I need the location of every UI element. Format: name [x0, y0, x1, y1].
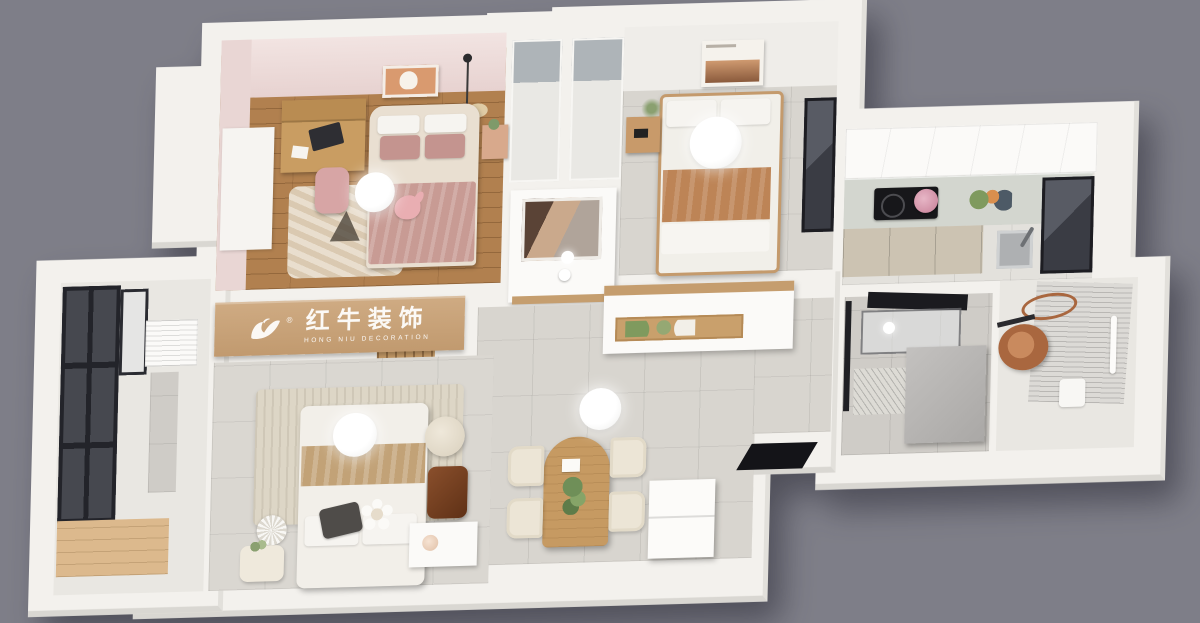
brand-name-en: HONG NIU DECORATION — [304, 334, 431, 345]
second-wall-art-scene — [705, 59, 760, 83]
dining-table-plant — [561, 474, 590, 515]
kitchen-upper-cabinets — [845, 122, 1098, 179]
wardrobe-unit-right — [569, 37, 624, 181]
kids-desk-chair — [314, 167, 349, 214]
dining-chair-3 — [610, 437, 647, 478]
balcony-wood-deck — [56, 518, 169, 577]
second-bed-fold — [661, 221, 770, 254]
registered-mark: ® — [287, 315, 293, 324]
balcony-window-wall — [57, 285, 121, 523]
kitchen-base-cabinets — [842, 225, 983, 277]
bull-logo-icon — [248, 313, 283, 344]
apartment-plan: ® 红牛装饰 HONG NIU DECORATION — [0, 0, 1200, 617]
kitchen-window — [1040, 176, 1094, 274]
kids-pillow-white-1 — [377, 115, 419, 134]
kids-desk-hutch — [282, 98, 367, 122]
balcony-ac-unit — [145, 319, 198, 367]
dining-table-card — [562, 459, 580, 473]
shower-drain-mat — [853, 367, 912, 415]
master-side-plant — [246, 537, 268, 556]
laundry-floor-mat — [1059, 378, 1086, 407]
sideboard-niche-plants — [625, 319, 695, 337]
dining-chair-1 — [508, 446, 545, 487]
dining-chair-4 — [608, 491, 645, 532]
master-leather-chair — [427, 466, 468, 519]
second-nightstand-plant — [640, 98, 662, 119]
scene: ® 红牛装饰 HONG NIU DECORATION — [0, 0, 1200, 600]
dining-chair-2 — [506, 498, 543, 539]
second-bedroom-window — [801, 97, 836, 232]
second-throw-blanket — [662, 167, 771, 222]
kids-rug-accent — [330, 211, 361, 242]
footprint-chimney — [152, 65, 226, 248]
kids-desk-papers — [291, 145, 309, 159]
bathroom-partition-block — [904, 345, 986, 443]
balcony-tile-column — [148, 372, 179, 493]
master-flower-pillow — [361, 498, 394, 531]
wardrobe-unit-left — [509, 39, 562, 183]
kids-pillow-white-2 — [424, 114, 466, 133]
brand-watermark-beam: ® 红牛装饰 HONG NIU DECORATION — [214, 296, 465, 357]
kids-bedroom-wall-panel — [220, 127, 275, 251]
kids-art-figure — [399, 71, 417, 90]
screenshot-root: { "scene": { "kind": "3d-dollhouse-floor… — [0, 0, 1200, 600]
second-nightstand-clock — [634, 129, 648, 138]
kids-pillow-mauve-2 — [425, 134, 466, 159]
master-vanity-desk — [409, 522, 478, 568]
hall-fridge — [648, 479, 716, 559]
kids-pillow-mauve-1 — [380, 135, 421, 160]
entry-cabinet-mirror — [521, 197, 602, 261]
kitchen-groceries — [968, 184, 1013, 211]
brand-name-cn: 红牛装饰 — [305, 307, 430, 334]
kids-bedroom-back-wall — [220, 33, 506, 99]
